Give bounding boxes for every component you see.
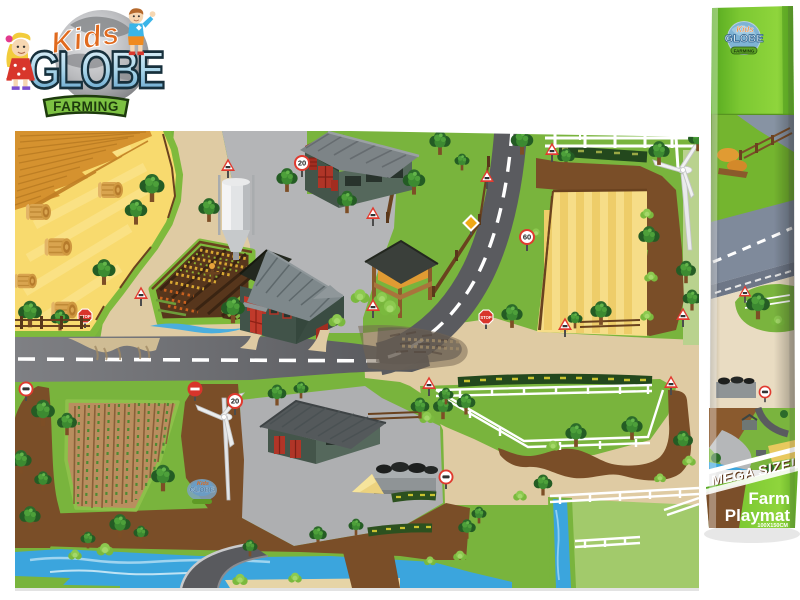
svg-text:FARMING: FARMING xyxy=(734,49,755,54)
svg-text:GLOBE: GLOBE xyxy=(724,33,763,45)
svg-text:GLOBE: GLOBE xyxy=(190,487,215,494)
svg-text:FARMING: FARMING xyxy=(53,99,119,114)
svg-text:Kids: Kids xyxy=(736,25,754,34)
svg-text:Kids: Kids xyxy=(197,481,209,487)
svg-text:100X150CM: 100X150CM xyxy=(757,523,788,529)
